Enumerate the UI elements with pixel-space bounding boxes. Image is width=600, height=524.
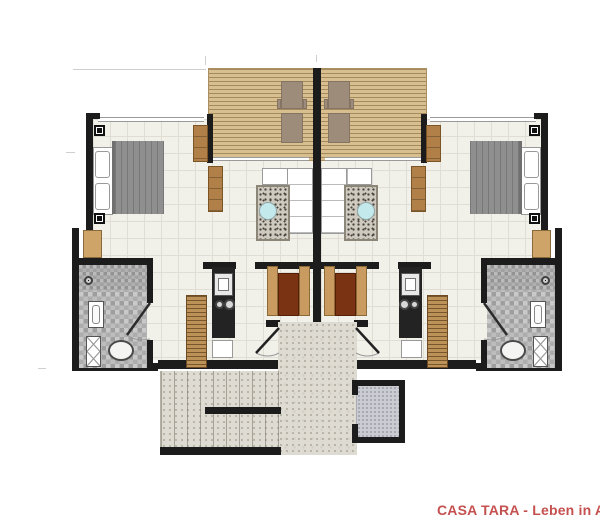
dining-table-right [335,273,356,316]
outer-wall-right-bath [555,228,562,371]
utility-wall-bottom [352,437,405,443]
entry-door-left-icon [248,322,280,358]
stairs-bottom-wall [160,447,281,455]
party-wall-deck [313,68,321,161]
dining-bench [267,266,278,316]
bed-blanket-right [470,141,522,214]
utility-room-floor [356,385,400,438]
entry-door-right-icon [355,322,387,358]
reference-tick [66,152,75,153]
lounger-seat [328,113,350,143]
sun-lounger-right [328,79,350,145]
wall-bottom-left-unit [158,360,280,369]
door-icon [120,298,152,342]
loft-ladder-left [186,295,207,368]
entrance-hall [278,322,357,455]
fridge-left [212,340,233,358]
shelf-cabinet-left [86,336,101,367]
pillow [95,151,110,178]
toilet-left [108,340,134,361]
party-wall-interior [313,160,321,322]
toilet-right [500,340,526,361]
stove-burner [399,299,410,310]
lounger-armrest [303,99,307,109]
wardrobe-left-a [193,125,208,162]
lounger-backrest [281,81,303,109]
kitchen-sink-left [214,273,233,296]
wall-symbol-icon [94,213,105,224]
window-bedroom-left [98,117,204,122]
lounger-armrest [277,99,281,109]
coffee-table-right [357,202,375,220]
wardrobe-right-a [426,125,441,162]
lounger-armrest [350,99,354,109]
outer-wall-left-bath [72,228,79,371]
shower-head-icon [84,276,93,285]
bath-sink-right [530,301,546,328]
closet-right [532,230,551,258]
wall-corner-topleft [86,113,100,119]
sun-lounger-left [281,79,303,145]
stairs-handrail [205,407,281,414]
shelf-cabinet-right [533,336,548,367]
lounger-seat [281,113,303,143]
utility-wall-left-lower [352,424,358,443]
wardrobe-left-b [208,166,223,212]
lounger-armrest [324,99,328,109]
window-bedroom-right [430,117,536,122]
wall-symbol-icon [529,125,540,136]
wall-bath-top-right [481,258,562,265]
reference-tick [38,368,46,369]
shower-head-icon [541,276,550,285]
utility-wall-right [399,380,405,443]
dining-bench [356,266,367,316]
reference-tick [205,56,206,65]
floor-plan: CASA TARA - Leben in Asien [0,0,600,524]
loft-ladder-right [427,295,448,368]
utility-wall-top [352,380,405,386]
wall-symbol-icon [529,213,540,224]
fridge-right [401,340,422,358]
wall-bath-right-upper-left [147,263,153,303]
wall-bottom-right-unit [354,360,476,369]
sliding-door-deck-left [213,157,309,161]
sofa-chaise-left [287,168,313,234]
lounger-backrest [328,81,350,109]
stove-burner [410,300,419,309]
dining-bench [299,266,310,316]
reference-tick [316,55,317,62]
reference-line [73,69,206,70]
utility-wall-left-upper [352,380,358,395]
dining-bench [324,266,335,316]
bed-blanket-left [112,141,164,214]
stove-burner [224,299,235,310]
closet-left [83,230,102,258]
coffee-table-left [259,202,277,220]
pillow [524,151,539,178]
sliding-door-deck-right [325,157,421,161]
wardrobe-right-b [411,166,426,212]
pillow [95,183,110,210]
dining-table-left [278,273,299,316]
brand-caption: CASA TARA - Leben in Asien [437,502,600,518]
bath-sink-left [88,301,104,328]
wall-corner-topright [534,113,548,119]
wall-symbol-icon [94,125,105,136]
stove-burner [215,300,224,309]
door-icon [482,298,514,342]
kitchen-sink-right [401,273,420,296]
pillow [524,183,539,210]
wall-bath-top-left [72,258,153,265]
